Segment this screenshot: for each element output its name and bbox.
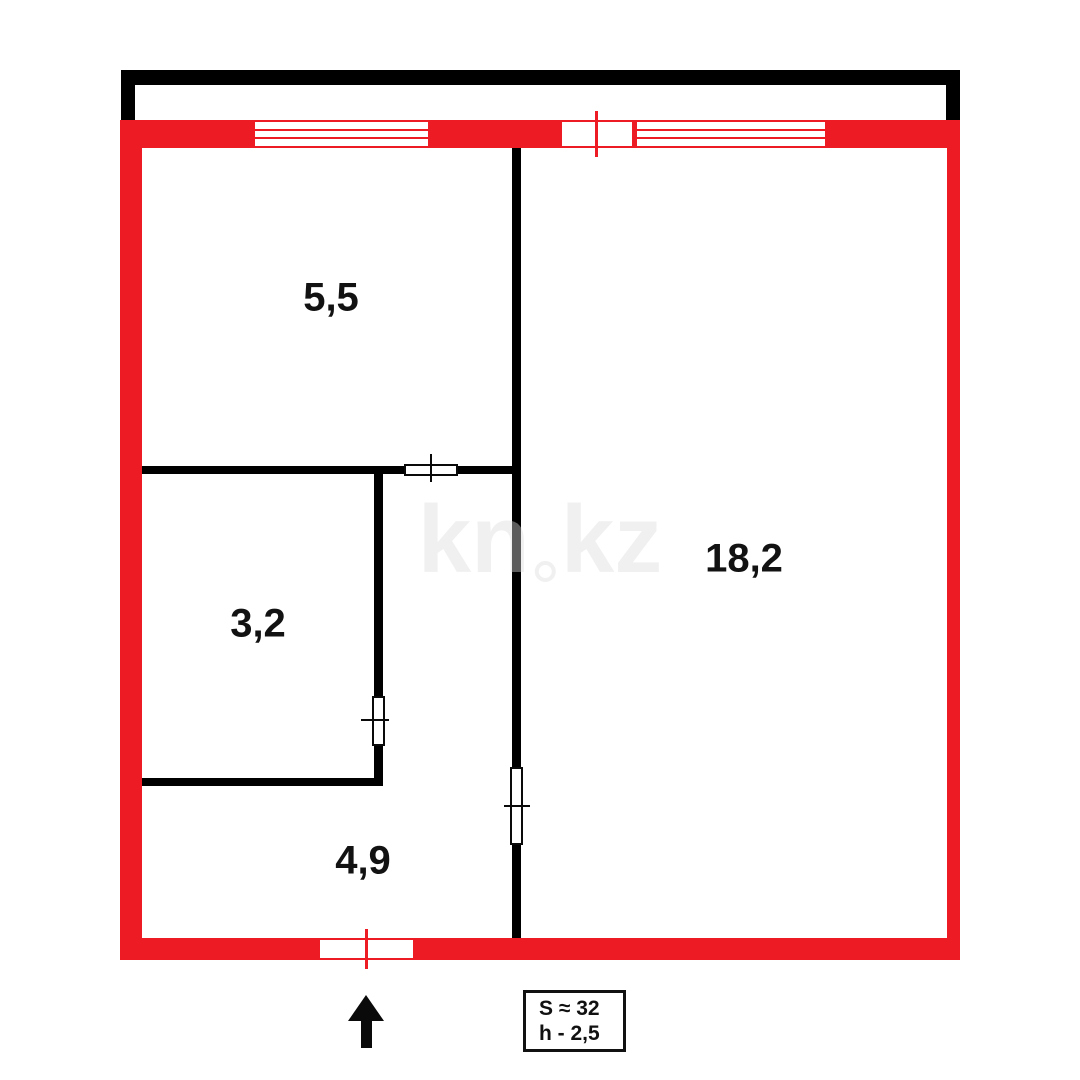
- window-pane-line: [637, 129, 825, 131]
- window-pane-line: [637, 137, 825, 139]
- balcony-outline-right: [946, 70, 960, 120]
- window-right-icon: [635, 120, 827, 148]
- window-pane-line: [255, 129, 428, 131]
- watermark-dot-icon: [535, 561, 556, 582]
- watermark: kn kz: [418, 492, 662, 588]
- entrance-arrow-shaft: [361, 1019, 372, 1048]
- room-area-label: 5,5: [303, 276, 359, 321]
- entrance-door-tick: [365, 929, 368, 969]
- balcony-door-tick: [595, 111, 598, 157]
- balcony-outline-top: [121, 70, 960, 85]
- watermark-text-right: kz: [561, 492, 662, 588]
- door-tick-room-mid-left: [361, 719, 389, 721]
- exterior-wall-bottom: [120, 938, 960, 960]
- room-area-label: 18,2: [705, 537, 783, 582]
- ceiling-height-text: h - 2,5: [539, 1021, 623, 1046]
- interior-wall-upper-horizontal-right: [458, 466, 512, 474]
- room-area-label: 3,2: [230, 602, 286, 647]
- entrance-arrow-icon: [348, 995, 384, 1021]
- interior-wall-center-vertical-upper: [512, 148, 521, 769]
- balcony-door-opening: [562, 120, 634, 148]
- interior-wall-lower-horizontal: [142, 778, 383, 786]
- exterior-wall-top: [120, 120, 960, 148]
- total-area-text: S ≈ 32: [539, 996, 623, 1021]
- interior-wall-upper-horizontal-left: [142, 466, 404, 474]
- door-leaf-room-mid-left: [372, 696, 385, 746]
- floor-plan-canvas: 5,5 3,2 18,2 4,9 kn kz S ≈ 32 h - 2,5: [0, 0, 1080, 1080]
- window-pane-line: [255, 137, 428, 139]
- balcony-outline-left: [121, 70, 135, 120]
- door-tick-room-top-left: [430, 454, 432, 482]
- exterior-wall-right: [947, 120, 960, 960]
- interior-wall-left-vertical-upper: [374, 470, 383, 696]
- door-tick-hallway-living: [504, 805, 530, 807]
- room-area-label: 4,9: [335, 839, 391, 884]
- info-box: S ≈ 32 h - 2,5: [523, 990, 626, 1052]
- interior-wall-center-vertical-lower: [512, 843, 521, 938]
- exterior-wall-left: [120, 120, 142, 960]
- window-left-icon: [253, 120, 430, 148]
